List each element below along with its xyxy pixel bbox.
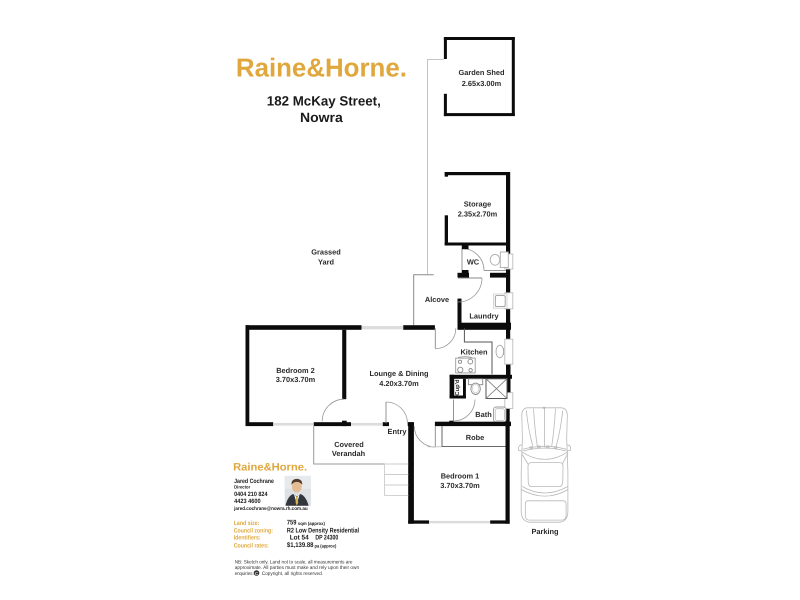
svg-text:C: C (255, 571, 258, 576)
svg-text:Parking: Parking (531, 527, 559, 536)
svg-text:Council zoning:: Council zoning: (234, 528, 273, 535)
svg-text:3.70x3.70m: 3.70x3.70m (440, 481, 480, 490)
svg-text:2.65x3.00m: 2.65x3.00m (462, 79, 502, 88)
svg-text:0404 210 824: 0404 210 824 (234, 491, 268, 498)
svg-text:Garden Shed: Garden Shed (459, 68, 505, 77)
svg-text:Bedroom 2: Bedroom 2 (276, 366, 315, 375)
svg-text:Laundry: Laundry (469, 312, 499, 321)
svg-text:Land size:: Land size: (234, 520, 260, 527)
svg-text:$1,139.88: $1,139.88 (287, 541, 314, 549)
svg-text:Lot 54: Lot 54 (290, 534, 309, 541)
svg-text:Copyright, all rights reserved: Copyright, all rights reserved. (262, 571, 323, 577)
svg-text:WC: WC (467, 258, 480, 267)
svg-text:Cup'd: Cup'd (454, 379, 461, 396)
svg-text:Director: Director (234, 485, 250, 490)
svg-text:2.35x2.70m: 2.35x2.70m (458, 210, 498, 219)
svg-text:Kitchen: Kitchen (460, 347, 488, 356)
svg-text:Identifiers:: Identifiers: (234, 535, 261, 542)
svg-text:Lounge & Dining: Lounge & Dining (369, 369, 429, 378)
svg-text:sqm (approx): sqm (approx) (298, 521, 325, 526)
svg-text:Bath: Bath (475, 410, 492, 419)
svg-text:enquiries.: enquiries. (235, 571, 254, 577)
svg-text:Council rates:: Council rates: (234, 543, 269, 550)
svg-text:DP 24300: DP 24300 (315, 534, 338, 541)
svg-text:pa (approx): pa (approx) (315, 543, 337, 548)
svg-text:Storage: Storage (464, 200, 492, 209)
svg-text:Grassed: Grassed (311, 248, 341, 257)
svg-text:Yard: Yard (318, 258, 335, 267)
svg-text:4423 4600: 4423 4600 (234, 498, 261, 505)
svg-text:Verandah: Verandah (332, 449, 366, 458)
svg-text:Entry: Entry (388, 427, 408, 436)
svg-text:Bedroom 1: Bedroom 1 (441, 472, 480, 481)
svg-text:182 McKay Street,: 182 McKay Street, (267, 93, 381, 108)
svg-text:jared.cochrane@nowra.rh.com.au: jared.cochrane@nowra.rh.com.au (233, 506, 308, 512)
svg-text:Raine&Horne.: Raine&Horne. (233, 462, 307, 474)
svg-text:3.70x3.70m: 3.70x3.70m (276, 375, 316, 384)
svg-text:Robe: Robe (466, 433, 484, 442)
svg-text:Raine&Horne.: Raine&Horne. (236, 52, 407, 82)
svg-text:Covered: Covered (334, 440, 364, 449)
svg-text:759: 759 (287, 520, 297, 527)
svg-text:4.20x3.70m: 4.20x3.70m (379, 379, 419, 388)
svg-text:Nowra: Nowra (300, 110, 343, 125)
svg-text:Alcove: Alcove (425, 295, 449, 304)
